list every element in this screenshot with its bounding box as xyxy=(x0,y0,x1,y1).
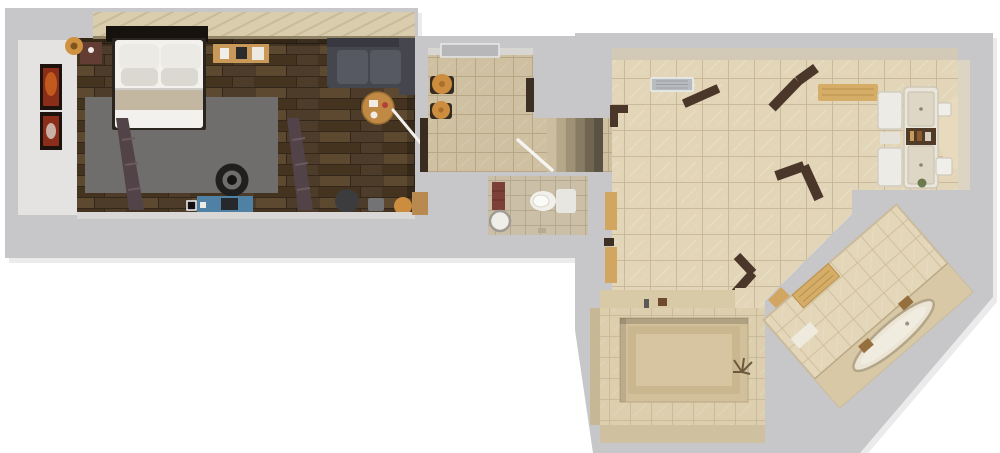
living-top-wall-face xyxy=(612,48,958,60)
entry-side-counter xyxy=(420,118,428,172)
room-spa xyxy=(590,288,765,443)
pillow xyxy=(121,68,158,86)
wall-art-frame-1 xyxy=(40,64,62,110)
door-leaf xyxy=(610,105,628,113)
floor-socket xyxy=(187,201,196,210)
spa-doorway-floor xyxy=(735,288,765,310)
flame-motif xyxy=(45,72,57,96)
laptop xyxy=(221,198,238,210)
round-table xyxy=(362,92,394,124)
paper-stack xyxy=(252,47,264,60)
sofa-cushion xyxy=(337,50,368,84)
shelf-bottle xyxy=(917,131,922,141)
toilet-seat xyxy=(533,195,549,207)
floor-drain xyxy=(538,228,546,233)
spa-top-wall-face xyxy=(600,290,735,308)
panel-knob xyxy=(919,163,923,167)
left-wall-wood-door xyxy=(605,247,617,283)
panel-knob xyxy=(919,107,923,111)
blanket-band xyxy=(115,90,203,110)
blanket-fold xyxy=(115,88,203,90)
bedroom-doorway-threshold xyxy=(412,192,428,215)
chair-seat xyxy=(227,175,237,185)
shelf-bottle xyxy=(910,131,914,141)
stool-center xyxy=(438,107,443,112)
door-jamb xyxy=(526,78,534,112)
staircase xyxy=(547,118,603,172)
cup xyxy=(88,47,94,53)
floorplan-render xyxy=(0,0,1000,453)
sofa xyxy=(327,38,415,95)
sofa-chaise xyxy=(399,38,415,95)
wood-fixture xyxy=(658,298,667,306)
ceiling-vent xyxy=(651,78,693,91)
magazine xyxy=(369,100,378,107)
door-jamb xyxy=(604,238,614,246)
recess-shadow xyxy=(620,318,626,402)
stair-tread xyxy=(594,118,603,172)
small-device xyxy=(236,47,247,59)
bedroom-bottom-wall-face xyxy=(77,212,415,219)
stair-tread xyxy=(575,118,584,172)
living-right-wall-face xyxy=(958,60,970,190)
stool-center xyxy=(439,81,445,87)
office-chair xyxy=(335,189,359,213)
front-door xyxy=(441,44,499,57)
double-bed xyxy=(106,26,208,130)
shelf-jar xyxy=(925,132,931,141)
pillow xyxy=(161,44,201,70)
art-motif xyxy=(46,123,56,139)
potted-plant xyxy=(918,179,927,188)
recess-shadow xyxy=(620,318,748,324)
room-wc xyxy=(488,176,588,235)
paper-stack xyxy=(220,48,229,59)
stair-tread xyxy=(547,118,556,172)
pillow xyxy=(119,44,159,70)
room-bedroom xyxy=(18,12,428,219)
stair-tread xyxy=(566,118,575,172)
sink xyxy=(938,103,951,116)
floorplan-canvas xyxy=(0,0,1000,453)
lamp-core xyxy=(71,43,78,50)
wall-shelf xyxy=(213,44,269,63)
white-cup xyxy=(371,112,378,119)
sofa-cushion xyxy=(370,50,401,84)
stair-tread xyxy=(556,118,565,172)
notepad xyxy=(200,202,206,208)
appliance-small xyxy=(936,158,952,175)
red-mug xyxy=(382,102,388,108)
appliance-white xyxy=(878,148,902,186)
appliance-white xyxy=(878,92,902,129)
wood-bench xyxy=(818,84,878,101)
left-wall-wood-door xyxy=(605,192,617,230)
spa-bottom-wall-face xyxy=(600,425,765,443)
side-table xyxy=(368,198,384,211)
spa-left-wall-face xyxy=(590,308,600,425)
sunken-recess xyxy=(620,318,748,402)
stair-tread xyxy=(585,118,594,172)
toilet-tank xyxy=(556,189,576,213)
red-cabinet xyxy=(492,182,505,210)
wall-art-frame-2 xyxy=(40,112,62,150)
wall-faucet xyxy=(644,299,649,308)
recess-floor xyxy=(636,334,732,386)
pillow xyxy=(161,68,198,86)
appliance-small xyxy=(880,132,900,144)
